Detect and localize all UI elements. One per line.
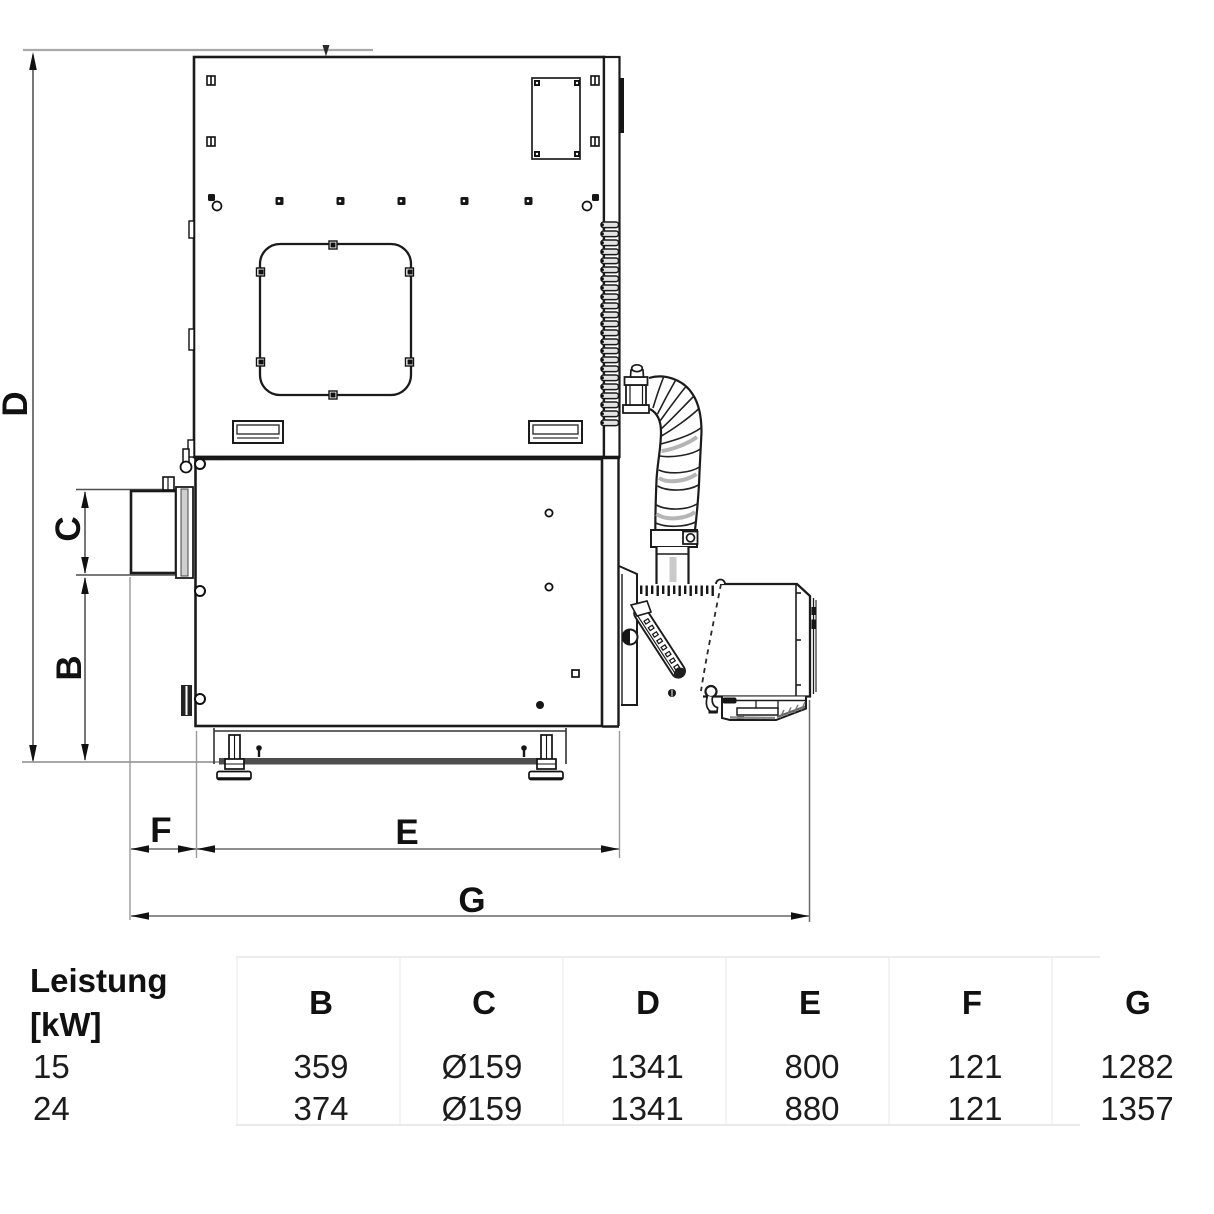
- svg-text:1282: 1282: [1100, 1048, 1173, 1085]
- svg-text:E: E: [799, 984, 821, 1021]
- svg-text:Leistung: Leistung: [30, 962, 168, 999]
- svg-text:1341: 1341: [610, 1048, 683, 1085]
- svg-text:359: 359: [293, 1048, 348, 1085]
- svg-text:C: C: [49, 516, 88, 541]
- svg-text:D: D: [0, 391, 35, 416]
- svg-text:E: E: [395, 813, 418, 852]
- svg-text:800: 800: [784, 1048, 839, 1085]
- svg-text:121: 121: [947, 1048, 1002, 1085]
- svg-text:1357: 1357: [1100, 1090, 1173, 1127]
- svg-text:C: C: [472, 984, 496, 1021]
- svg-text:880: 880: [784, 1090, 839, 1127]
- svg-text:G: G: [1125, 984, 1151, 1021]
- svg-text:G: G: [458, 881, 485, 920]
- svg-text:B: B: [309, 984, 333, 1021]
- svg-text:D: D: [636, 984, 660, 1021]
- svg-text:Ø159: Ø159: [442, 1090, 523, 1127]
- svg-text:B: B: [50, 655, 89, 680]
- svg-text:374: 374: [293, 1090, 348, 1127]
- svg-text:Ø159: Ø159: [442, 1048, 523, 1085]
- svg-text:[kW]: [kW]: [30, 1006, 101, 1043]
- svg-text:1341: 1341: [610, 1090, 683, 1127]
- svg-text:15: 15: [33, 1048, 70, 1085]
- svg-text:24: 24: [33, 1090, 70, 1127]
- svg-text:121: 121: [947, 1090, 1002, 1127]
- svg-text:F: F: [150, 811, 171, 850]
- svg-text:F: F: [962, 984, 982, 1021]
